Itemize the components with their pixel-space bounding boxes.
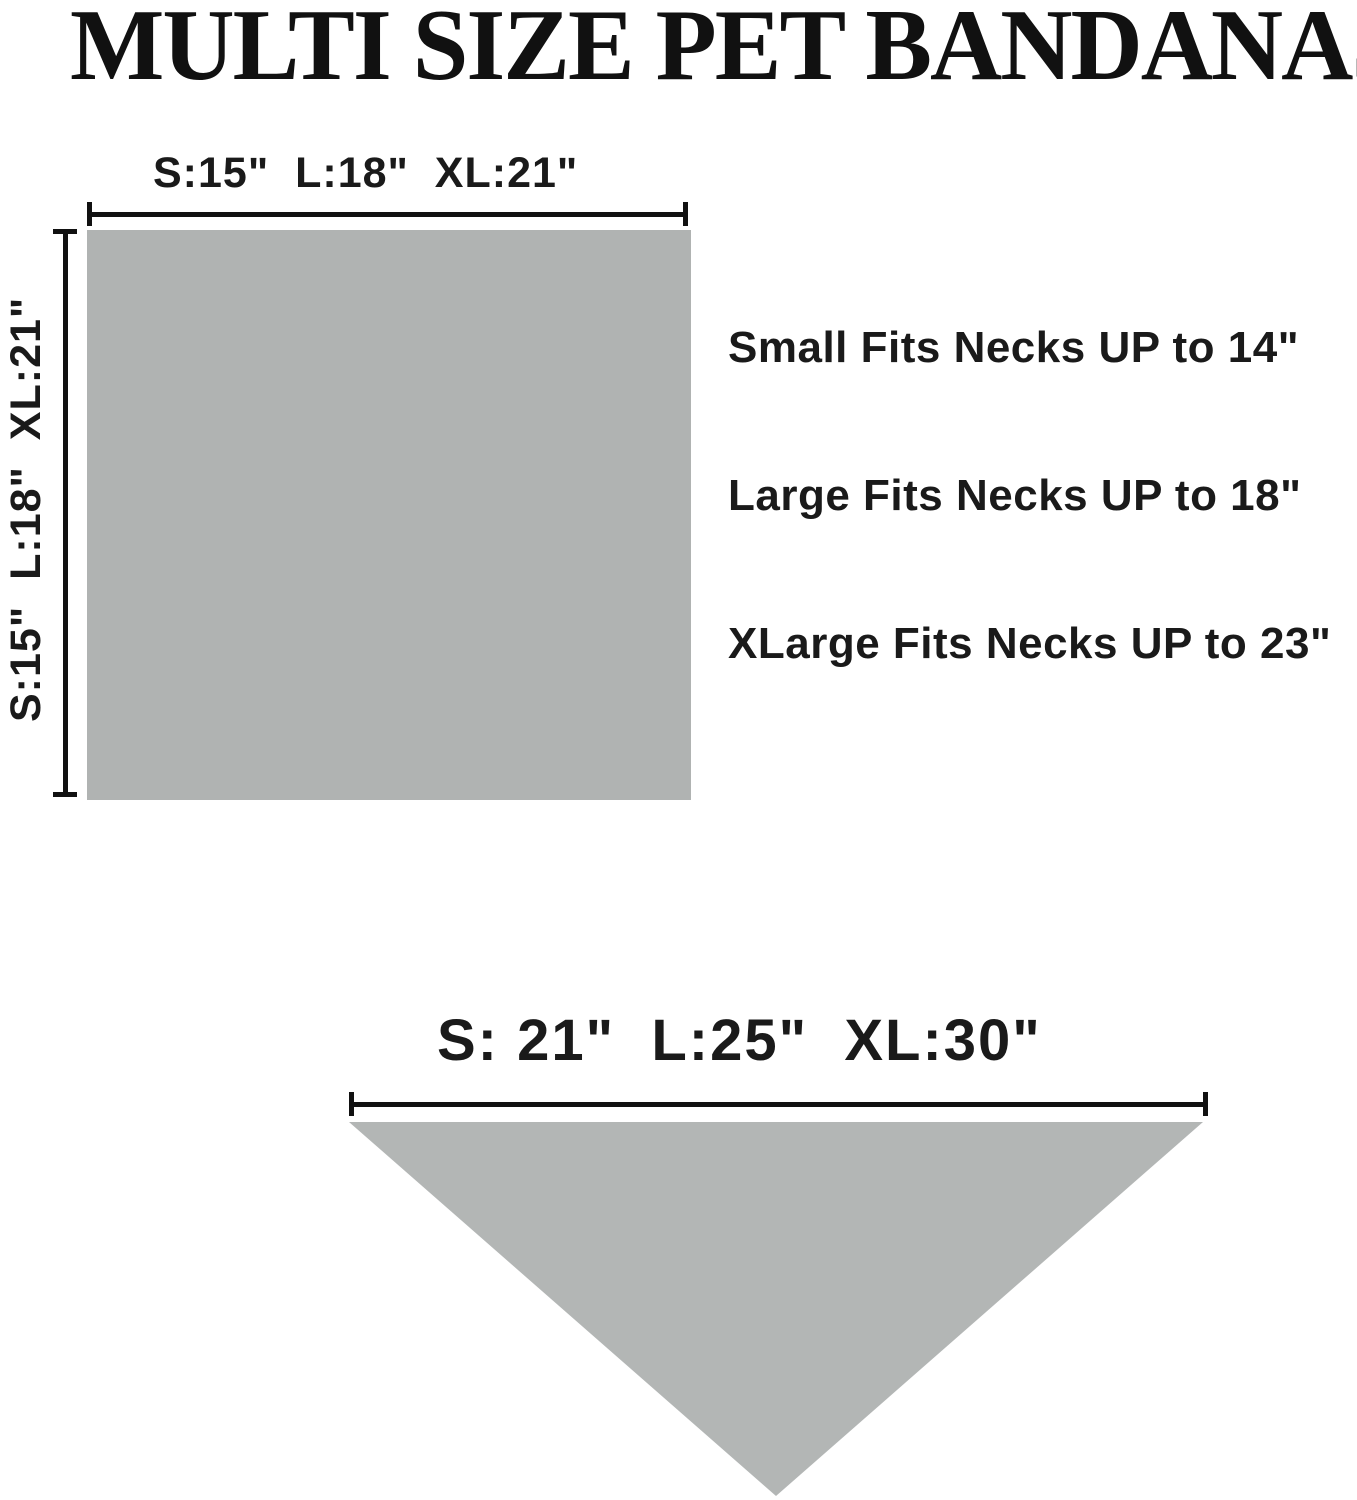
page-title: MULTI SIZE PET BANDANAS [70, 0, 1357, 103]
measure-tick-bottom [53, 792, 77, 797]
square-width-label: S:15" L:18" XL:21" [153, 152, 578, 195]
square-width-measure [87, 202, 688, 226]
bandana-square-shape [87, 230, 691, 800]
measure-tick-right [683, 202, 688, 226]
fit-note-large: Large Fits Necks UP to 18" [728, 474, 1301, 518]
fit-note-xlarge: XLarge Fits Necks UP to 23" [728, 622, 1331, 666]
pet-bandana-size-infographic: MULTI SIZE PET BANDANAS S:15" L:18" XL:2… [0, 0, 1357, 1500]
measure-line [349, 1102, 1208, 1107]
measure-line [87, 212, 688, 217]
measure-line [63, 229, 68, 797]
measure-tick-right [1203, 1092, 1208, 1116]
triangle-width-measure [349, 1092, 1208, 1116]
triangle-width-label: S: 21" L:25" XL:30" [437, 1012, 1042, 1070]
square-height-measure [53, 229, 77, 797]
fit-note-small: Small Fits Necks UP to 14" [728, 326, 1299, 370]
square-height-label: S:15" L:18" XL:21" [5, 302, 47, 722]
bandana-triangle-shape [349, 1122, 1203, 1496]
